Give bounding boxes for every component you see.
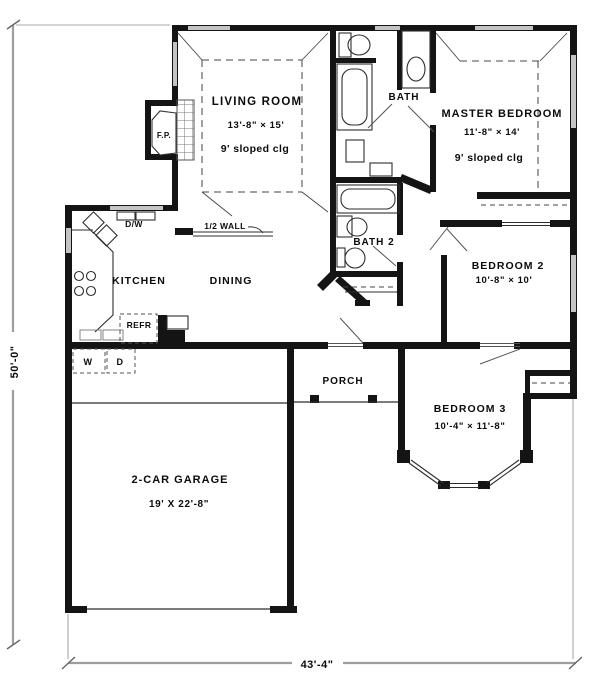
master-door-swing [408,106,434,132]
window [66,228,71,253]
cabinet-lines [80,330,123,340]
kitchen-label: KITCHEN [112,275,166,287]
bath2-label: BATH 2 [353,237,394,248]
window [110,206,163,210]
bedroom3-size: 10'-4" × 11'-8" [435,421,506,432]
window [188,26,230,30]
half-wall-label: 1/2 WALL [204,221,245,231]
bathtub-icon [337,64,372,130]
corner-sink-icon [83,212,117,246]
master-bedroom-size: 11'-8" × 14' [464,127,520,138]
bedroom2-door-swing [447,229,467,251]
living-room-note: 9' sloped clg [221,143,289,155]
refrigerator-label: REFR [127,320,152,330]
living-room-label: LIVING ROOM [212,96,303,108]
counter-line [93,232,113,332]
thin-lines [72,402,398,609]
window [571,255,576,312]
range-burners-icon [75,272,96,296]
garage-label: 2-CAR GARAGE [132,474,229,486]
hall-door-swing [430,227,448,250]
master-bedroom-label: MASTER BEDROOM [442,108,563,120]
window [173,42,177,86]
bath-label: BATH [388,92,419,103]
window [571,55,576,128]
bedroom3-door-swing [480,349,520,364]
garage-size: 19' X 22'-8" [149,499,209,510]
pantry-shelf [167,316,188,329]
fireplace-label: F.P. [157,131,171,140]
washer-label: W [84,357,93,367]
master-bedroom-note: 9' sloped clg [455,152,523,164]
front-door-swing [340,318,363,343]
overall-depth-dimension: 50'-0" [9,346,21,379]
dishwasher-label: D/W [125,219,143,229]
bay-window [409,460,521,488]
toilet2-icon [337,248,365,268]
dining-label: DINING [210,275,253,287]
toilet-icon [339,33,370,57]
bathtub2-icon [337,185,399,213]
bath2-door-swing [373,246,396,266]
floor-plan-drawing: LIVING ROOM 13'-8" × 15' 9' sloped clg M… [0,0,600,692]
linen-shelves [346,140,392,176]
overall-width-dimension: 43'-4" [301,659,334,671]
window [475,26,533,30]
bedroom3-label: BEDROOM 3 [434,403,507,415]
labels: LIVING ROOM 13'-8" × 15' 9' sloped clg M… [9,92,562,671]
bath-fixtures [337,31,430,268]
window [375,26,400,30]
living-room-size: 13'-8" × 15' [228,120,285,131]
fireplace [152,100,194,160]
hearth-hatch [177,100,194,160]
floor-plan-sheet: LIVING ROOM 13'-8" × 15' 9' sloped clg M… [0,0,600,692]
vanity2-sink-icon [337,216,367,237]
porch-label: PORCH [322,376,363,387]
closet-shelf-dashes [343,205,570,383]
bedroom2-size: 10'-8" × 10' [476,275,533,286]
dryer-label: D [117,357,124,367]
vanity-sink-icon [402,31,430,88]
bedroom2-label: BEDROOM 2 [472,260,545,272]
